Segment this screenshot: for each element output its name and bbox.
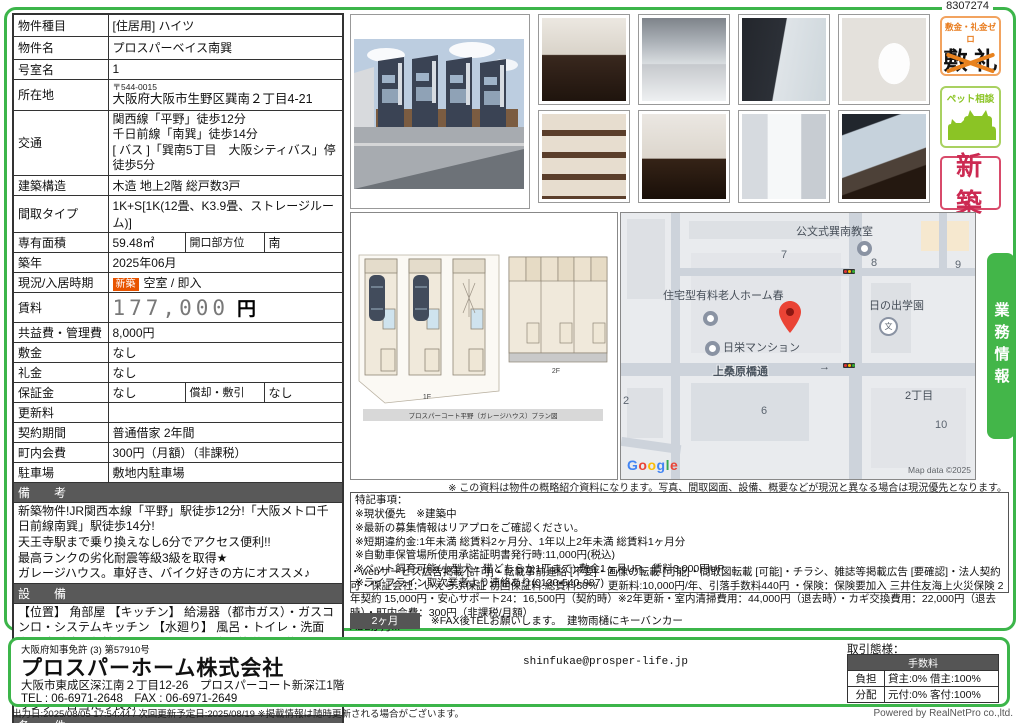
map-block-number: 6	[761, 405, 767, 417]
powered-by: Powered by RealNetPro co.,ltd.	[873, 708, 1013, 719]
row-label: 現況/入居時期	[13, 272, 108, 292]
neighborhood-fee: 300円（月額）（非課税）	[108, 442, 343, 462]
row-label: 駐車場	[13, 462, 108, 482]
occupancy-status: 空室 / 即入	[144, 276, 202, 290]
map-copyright: Map data ©2025	[908, 465, 971, 475]
badge-title: 新築	[942, 146, 999, 220]
business-info-tab[interactable]: 業務情報	[987, 253, 1015, 439]
photo-closet	[538, 110, 630, 203]
floorplan-1f-label: 1F	[423, 394, 431, 401]
floorplan-2f-label: 2F	[552, 368, 560, 375]
commission-row-label: 分配	[848, 687, 885, 703]
photo-washbasin	[738, 110, 830, 203]
row-label: 建築構造	[13, 175, 108, 195]
room-number: 1	[108, 59, 343, 79]
poi-icon	[703, 311, 718, 326]
commission-table: 手数料 負担 貸主:0% 借主:100% 分配 元付:0% 客付:100%	[847, 654, 999, 703]
row-label: 交通	[13, 110, 108, 175]
map-label-mansion: 日栄マンション	[723, 339, 800, 355]
status-cell: 新築空室 / 即入	[108, 272, 343, 292]
row-label: 所在地	[13, 79, 108, 110]
structure: 木造 地上2階 総戸数3戸	[108, 175, 343, 195]
photo-room	[538, 14, 630, 105]
commission-row-label: 負担	[848, 671, 885, 687]
row-label: 間取タイプ	[13, 195, 108, 232]
row-label: 礼金	[13, 362, 108, 382]
commission-row-value: 元付:0% 客付:100%	[885, 687, 999, 703]
address-cell: 〒544-0015 大阪府大阪市生野区巽南２丁目4-21	[108, 79, 343, 110]
pets-icon	[944, 105, 998, 141]
row-label: 町内会費	[13, 442, 108, 462]
map-label-kumon: 公文式巽南教室	[796, 223, 873, 239]
row-label: 賃料	[13, 292, 108, 322]
contract-term: 普通借家 2年間	[108, 422, 343, 442]
traffic-signal-icon	[843, 269, 855, 274]
exterior-rendering-photo	[350, 14, 530, 209]
amortization: なし	[264, 382, 343, 402]
ad-fee-row: 2ヶ月 ※FAX後TELお願いします。 建物雨樋にキーバンカー	[350, 613, 1005, 629]
remarks-header: 備 考	[13, 482, 343, 502]
poi-icon	[857, 241, 872, 256]
floorplan-caption: プロスパーコート平野（ガレージハウス）プラン図	[409, 411, 558, 420]
new-build-badge: 新築	[113, 278, 139, 291]
rent-amount: 177,000	[113, 296, 230, 320]
row-label: 号室名	[13, 59, 108, 79]
row-label: 築年	[13, 252, 108, 272]
floor-plan-panel: 1F 2F プロスパーコート平野（ガレージハウス）プラン図	[350, 212, 618, 480]
key-money: なし	[108, 362, 343, 382]
layout-type: 1K+S[1K(12畳、K3.9畳、ストレージルーム)]	[108, 195, 343, 232]
school-icon: 文	[879, 317, 898, 336]
location-map: 公文式巽南教室 7 8 9 住宅型有料老人ホーム春 日栄マンション 日の出学園 …	[620, 212, 976, 480]
map-label-chome: 2丁目	[905, 387, 933, 403]
equipment-header: 設 備	[13, 583, 343, 603]
agency-footer: 大阪府知事免許 (3) 第57910号 プロスパーホーム株式会社 大阪市東成区深…	[8, 637, 1010, 707]
row-label: 保証金	[13, 382, 108, 402]
postal-code: 〒544-0015	[113, 83, 339, 92]
row-label: 敷金	[13, 342, 108, 362]
business-info-tab-label: 業務情報	[991, 302, 1012, 390]
property-spec-table: 物件種目 [住居用] ハイツ 物件名 プロスパーベイス南巽 号室名 1 所在地 …	[12, 13, 344, 723]
floor-area: 59.48㎡	[108, 232, 185, 252]
badge-pets-negotiable: ペット相談	[940, 86, 1001, 148]
property-sheet: 8307274 物件種目 [住居用] ハイツ 物件名 プロスパーベイス南巽 号室…	[0, 0, 1027, 723]
row-label: 専有面積	[13, 232, 108, 252]
map-label-elder-home: 住宅型有料老人ホーム春	[663, 287, 784, 303]
rent-cell: 177,000円	[108, 292, 343, 322]
opening-direction: 南	[264, 232, 343, 252]
map-block-number: 7	[781, 249, 787, 261]
badge-new-construction: 新築	[940, 156, 1001, 210]
row-label: 更新料	[13, 402, 108, 422]
map-block-number: 10	[935, 419, 947, 431]
photo-kitchen	[638, 14, 730, 105]
building-render	[354, 31, 524, 189]
badge-no-deposit-no-keymoney: 敷金・礼金ゼロ 敷 礼	[940, 16, 1001, 76]
map-block-number: 9	[955, 259, 961, 271]
built-year: 2025年06月	[108, 252, 343, 272]
rent-unit: 円	[237, 299, 256, 320]
row-label: 開口部方位	[185, 232, 264, 252]
map-pin-icon	[779, 301, 801, 333]
property-name: プロスパーベイス南巽	[108, 36, 343, 59]
serial-number: 8307274	[942, 0, 993, 12]
management-fee: 8,000円	[108, 322, 343, 342]
map-block-number: 8	[871, 257, 877, 269]
row-label: 共益費・管理費	[13, 322, 108, 342]
property-type: [住居用] ハイツ	[108, 14, 343, 36]
poi-icon	[705, 341, 720, 356]
map-road-name: 上桑原橋通	[713, 363, 768, 379]
road-direction-arrow: →	[819, 361, 830, 373]
photo-balcony-window	[838, 110, 930, 203]
company-tel-fax: TEL : 06-6971-2648 FAX : 06-6971-2649	[21, 690, 237, 706]
badge-title: 敷金・礼金ゼロ	[942, 21, 999, 45]
company-email: shinfukae@prosper-life.jp	[523, 656, 688, 668]
crossed-chars: 敷 礼	[942, 47, 999, 77]
output-date-line: 出力日:2025/08/05 17:54:44 / 次回更新予定日:2025/0…	[12, 706, 464, 720]
badge-title: ペット相談	[942, 91, 999, 105]
row-label: 償却・敷引	[185, 382, 264, 402]
remarks-text: 新築物件!JR関西本線「平野」駅徒歩12分!「大阪メトロ千日前線南巽」駅徒歩14…	[13, 502, 343, 583]
commission-row-value: 貸主:0% 借主:100%	[885, 671, 999, 687]
commission-header: 手数料	[848, 655, 999, 671]
renewal-fee	[108, 402, 343, 422]
guarantee-money: なし	[108, 382, 185, 402]
row-label: 契約期間	[13, 422, 108, 442]
row-label: 物件名	[13, 36, 108, 59]
ad-fee-months: 2ヶ月	[350, 613, 420, 629]
photo-room-2	[638, 110, 730, 203]
photo-toilet	[838, 14, 930, 105]
row-label: 物件種目	[13, 14, 108, 36]
map-block-number: 2	[623, 395, 629, 407]
traffic-signal-icon	[843, 363, 855, 368]
transit: 関西線「平野」徒歩12分 千日前線「南巽」徒歩14分 [ バス ]「巽南5丁目 …	[108, 110, 343, 175]
map-label-hinode: 日の出学園	[869, 297, 924, 313]
floor-plan-drawing: 1F 2F プロスパーコート平野（ガレージハウス）プラン図	[351, 213, 615, 477]
ad-contact-note: ※FAX後TELお願いします。 建物雨樋にキーバンカー	[431, 615, 683, 627]
special-notes-title: 特記事項：	[355, 494, 1004, 508]
deposit: なし	[108, 342, 343, 362]
parking: 敷地内駐車場	[108, 462, 343, 482]
google-logo: Google	[627, 457, 678, 473]
address: 大阪府大阪市生野区巽南２丁目4-21	[113, 92, 339, 106]
photo-bathroom	[738, 14, 830, 105]
